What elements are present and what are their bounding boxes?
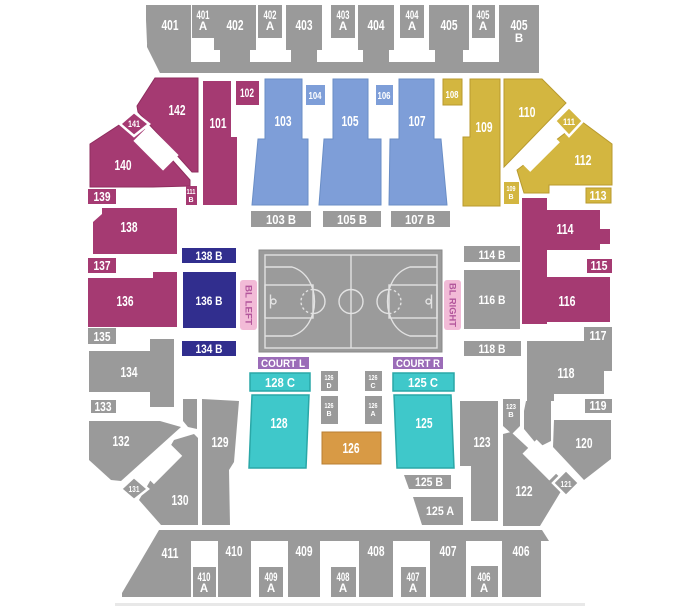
- svg-text:409: 409: [296, 543, 313, 560]
- svg-text:102: 102: [240, 88, 254, 100]
- svg-text:141: 141: [128, 119, 140, 129]
- svg-text:126: 126: [369, 403, 378, 410]
- svg-text:A: A: [339, 21, 347, 33]
- svg-text:126: 126: [343, 440, 360, 457]
- svg-text:109: 109: [476, 119, 493, 136]
- svg-text:A: A: [479, 21, 487, 33]
- svg-text:120: 120: [576, 435, 593, 452]
- svg-text:A: A: [409, 583, 417, 595]
- svg-text:121: 121: [561, 479, 572, 489]
- svg-text:142: 142: [169, 102, 186, 119]
- svg-text:104: 104: [309, 90, 322, 102]
- svg-text:403: 403: [296, 17, 313, 34]
- svg-text:135: 135: [94, 329, 111, 344]
- svg-text:126: 126: [325, 375, 334, 382]
- svg-text:118 B: 118 B: [479, 342, 506, 356]
- svg-text:408: 408: [368, 543, 385, 560]
- svg-text:B: B: [508, 410, 514, 419]
- svg-text:128 C: 128 C: [265, 376, 295, 390]
- svg-text:128: 128: [271, 415, 288, 432]
- svg-text:126: 126: [325, 403, 334, 410]
- svg-text:126: 126: [369, 375, 378, 382]
- svg-text:406: 406: [513, 543, 530, 560]
- svg-text:A: A: [267, 583, 275, 595]
- svg-text:136 B: 136 B: [196, 294, 223, 308]
- svg-text:129: 129: [212, 434, 229, 451]
- svg-text:116: 116: [559, 293, 576, 310]
- svg-text:B: B: [515, 33, 523, 45]
- svg-text:101: 101: [210, 115, 227, 132]
- svg-text:111: 111: [563, 117, 575, 127]
- svg-text:A: A: [339, 583, 347, 595]
- svg-text:111: 111: [187, 189, 196, 196]
- svg-text:118: 118: [558, 365, 575, 382]
- svg-text:134 B: 134 B: [196, 342, 223, 356]
- svg-text:402: 402: [227, 17, 244, 34]
- svg-text:A: A: [266, 21, 274, 33]
- svg-text:105: 105: [342, 113, 359, 130]
- svg-text:137: 137: [94, 258, 111, 273]
- svg-text:119: 119: [590, 398, 607, 413]
- svg-text:125 A: 125 A: [426, 504, 454, 518]
- svg-text:108: 108: [446, 89, 459, 101]
- svg-text:134: 134: [121, 364, 138, 381]
- svg-text:BL LEFT: BL LEFT: [243, 285, 254, 325]
- svg-text:407: 407: [440, 543, 457, 560]
- svg-text:114: 114: [557, 221, 574, 238]
- svg-text:116 B: 116 B: [479, 293, 506, 307]
- svg-text:136: 136: [117, 293, 134, 310]
- svg-text:411: 411: [162, 545, 179, 562]
- svg-text:405: 405: [511, 17, 528, 34]
- svg-text:107 B: 107 B: [405, 213, 435, 227]
- svg-text:A: A: [200, 583, 208, 595]
- svg-text:113: 113: [590, 188, 607, 203]
- svg-text:130: 130: [172, 492, 189, 509]
- svg-text:B: B: [508, 194, 513, 201]
- svg-text:C: C: [370, 383, 375, 390]
- svg-text:106: 106: [378, 90, 391, 102]
- svg-text:109: 109: [507, 186, 516, 193]
- svg-text:131: 131: [129, 484, 140, 494]
- svg-text:139: 139: [94, 189, 111, 204]
- svg-text:140: 140: [115, 157, 132, 174]
- svg-text:114 B: 114 B: [479, 248, 506, 262]
- svg-text:COURT R: COURT R: [396, 358, 440, 370]
- svg-text:122: 122: [516, 483, 533, 500]
- svg-text:105 B: 105 B: [337, 213, 367, 227]
- svg-text:410: 410: [226, 543, 243, 560]
- svg-text:A: A: [199, 21, 207, 33]
- svg-text:D: D: [326, 383, 331, 390]
- svg-text:117: 117: [590, 328, 607, 343]
- svg-text:A: A: [480, 583, 488, 595]
- svg-text:401: 401: [162, 17, 179, 34]
- svg-text:138 B: 138 B: [196, 249, 223, 263]
- svg-text:103: 103: [275, 113, 292, 130]
- svg-text:B: B: [188, 197, 193, 204]
- svg-text:404: 404: [368, 17, 385, 34]
- svg-text:B: B: [326, 411, 331, 418]
- svg-text:405: 405: [441, 17, 458, 34]
- svg-text:110: 110: [519, 104, 536, 121]
- svg-text:133: 133: [95, 399, 112, 414]
- svg-text:A: A: [408, 21, 416, 33]
- svg-text:123: 123: [474, 434, 491, 451]
- svg-text:132: 132: [113, 433, 130, 450]
- svg-text:125: 125: [416, 415, 433, 432]
- svg-text:125 C: 125 C: [408, 376, 438, 390]
- svg-text:125 B: 125 B: [415, 475, 443, 489]
- svg-text:BL RIGHT: BL RIGHT: [447, 283, 458, 327]
- svg-text:107: 107: [409, 113, 426, 130]
- svg-text:115: 115: [591, 258, 608, 273]
- svg-text:A: A: [370, 411, 375, 418]
- svg-text:103 B: 103 B: [266, 213, 296, 227]
- svg-text:COURT L: COURT L: [261, 358, 305, 370]
- svg-text:112: 112: [575, 152, 592, 169]
- svg-text:138: 138: [121, 219, 138, 236]
